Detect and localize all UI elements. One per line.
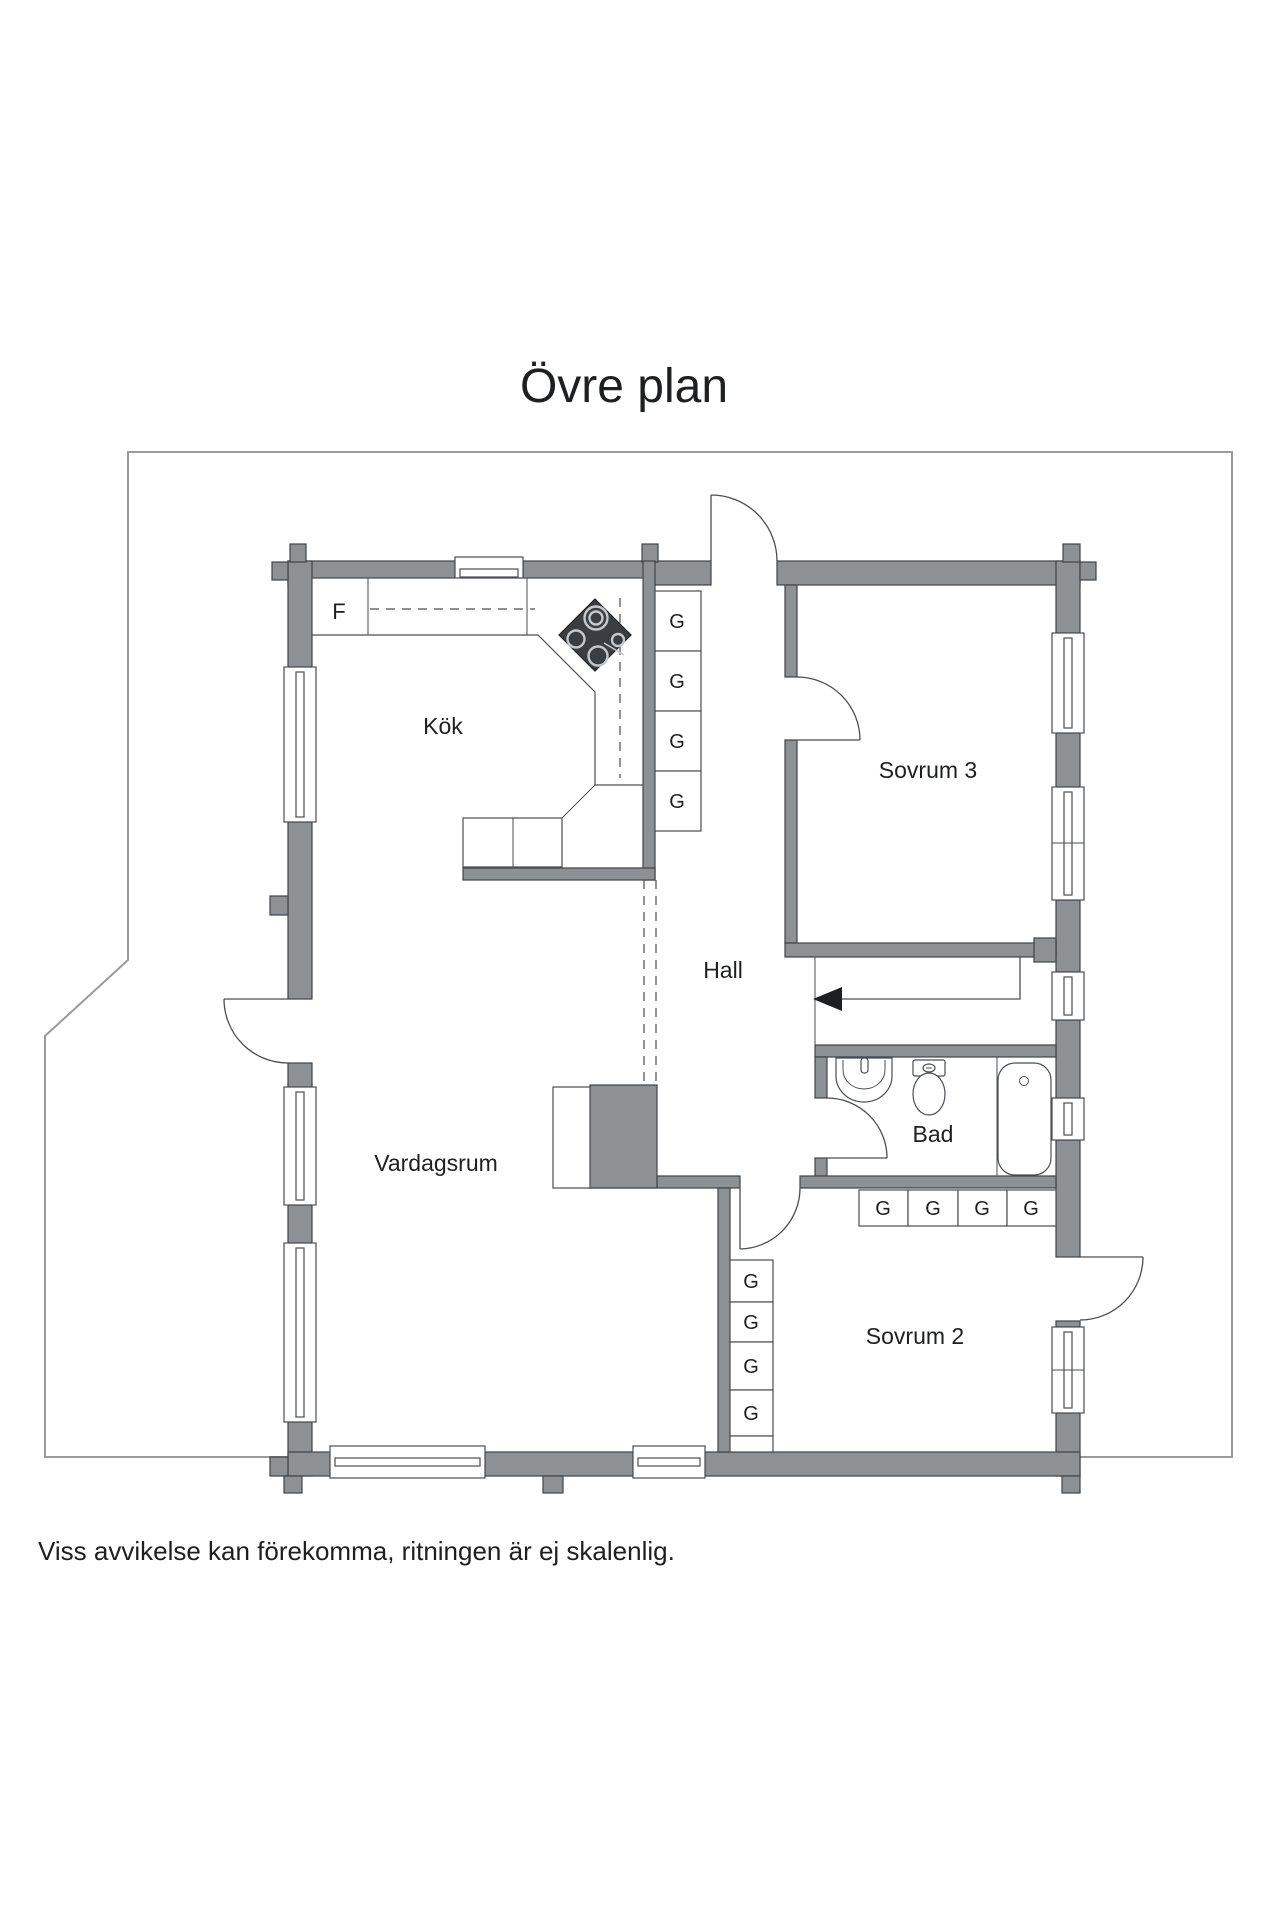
window [1052,633,1084,733]
floor-plan-svg: Övre plan [0,0,1280,1920]
bathtub [997,1057,1051,1176]
wardrobe-cabinets-bedroom2: G G G G [730,1260,773,1452]
bedroom3-west-wall-upper [785,585,797,677]
wardrobe-label: G [1023,1198,1039,1220]
shaft [553,1087,590,1188]
fridge-label: F [332,599,345,624]
kitchen-east-wall [643,561,655,880]
wardrobe-label: G [743,1403,759,1425]
window [1052,787,1084,900]
kitchen-south-wall [463,868,655,880]
floor-plan-page: Övre plan [0,0,1280,1920]
side-door [224,999,288,1063]
stairs-direction-arrow [813,987,842,1011]
room-label-kitchen: Kök [423,713,463,739]
toilet [913,1060,945,1115]
wardrobe-cabinets-bathroom-row: G G G G [859,1190,1056,1226]
wardrobe-label: G [743,1271,759,1293]
balcony-door [1080,1257,1143,1320]
room-label-bathroom: Bad [913,1121,954,1147]
bedroom2-west-wall [718,1188,730,1452]
wardrobe-label: G [875,1198,891,1220]
wardrobe-label: G [743,1356,759,1378]
entry-door [711,495,777,561]
bedroom3-door [797,677,860,740]
window [1052,972,1084,1020]
window [330,1446,485,1478]
bathroom-west-wall [815,1057,827,1098]
wardrobe-cabinets-hall: G G G G [655,591,701,831]
wardrobe-label: G [743,1312,759,1334]
bedroom3-west-wall-lower [785,740,797,943]
window [284,1087,316,1205]
wardrobe-label: G [669,791,685,813]
bedroom2-door [740,1188,800,1249]
wardrobe-label: G [974,1198,990,1220]
wardrobe-label: G [669,611,685,633]
wardrobe-label: G [669,671,685,693]
window [284,1243,316,1422]
window [284,667,316,822]
stairs [813,957,1020,1045]
bedroom3-south-wall-tab [1034,938,1056,962]
bathroom-west-wall-stub [815,1158,827,1176]
chimney [590,1085,657,1188]
sink [836,1058,892,1102]
wardrobe-label: G [925,1198,941,1220]
room-label-bedroom3: Sovrum 3 [879,757,977,783]
disclaimer-text: Viss avvikelse kan förekomma, ritningen … [38,1536,675,1566]
window [633,1446,705,1478]
wardrobe-label: G [669,731,685,753]
bathroom-door [827,1098,887,1158]
kitchen-island [463,785,595,867]
hall-south-wall-right [800,1176,1056,1188]
window [1052,1098,1084,1140]
room-label-hall: Hall [703,957,743,983]
bedroom3-south-wall [785,943,1056,957]
page-title: Övre plan [520,360,728,413]
bathroom-north-wall [815,1045,1056,1057]
room-label-living-room: Vardagsrum [374,1150,498,1176]
window [1052,1327,1084,1413]
dashed-opening-line [644,880,656,1085]
room-label-bedroom2: Sovrum 2 [866,1323,964,1349]
